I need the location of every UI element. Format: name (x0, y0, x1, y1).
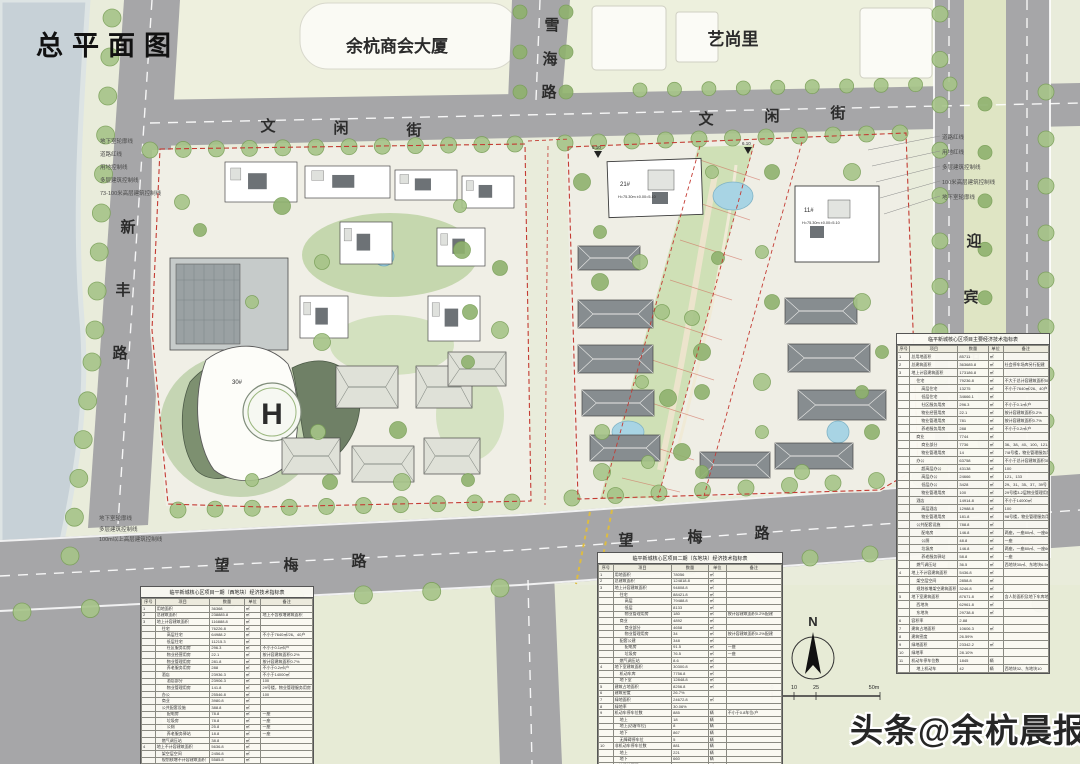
table-cell (142, 737, 156, 744)
tree (771, 80, 785, 94)
table-cell: 辆 (988, 665, 1003, 673)
table-cell: 78056 (672, 572, 709, 579)
tree (423, 582, 441, 600)
table-cell: 1 (898, 353, 910, 361)
tree (79, 392, 97, 410)
table-cell: 不小于14000㎡ (261, 671, 313, 678)
table-cell: 住宅 (910, 377, 958, 385)
table-cell: ㎡ (708, 618, 726, 625)
table-cell: 辆 (708, 743, 726, 750)
table-row: 2总建筑面积124818.8㎡ (599, 578, 782, 585)
table-cell: 10 (898, 649, 910, 657)
table-cell: 2456.8 (210, 751, 244, 758)
table-cell (898, 529, 910, 537)
table-cell: ㎡ (244, 698, 261, 705)
table-cell: ㎡ (244, 606, 261, 613)
table-cell: 绿地率 (613, 703, 672, 710)
table-cell (142, 711, 156, 718)
table-cell (599, 611, 614, 618)
table-row: 高层住宅13275㎡不小于7640㎡/26、40户 (898, 385, 1049, 393)
table-cell: 地下室 (613, 677, 672, 684)
table-cell (261, 744, 313, 751)
table-cell: ㎡ (988, 537, 1003, 545)
table-row: 地下室12848.8㎡ (599, 677, 782, 684)
indicator-table-overall: 临平新城核心区项目主要经济技术指标表序号项目数量单位备注1总用地面积85711㎡… (896, 333, 1050, 674)
table-row: 东地块29738.8㎡ (898, 609, 1049, 617)
table-cell (726, 572, 781, 579)
table-cell: 低层办公 (910, 481, 958, 489)
table-cell: ㎡ (988, 353, 1003, 361)
table-cell: 架空层空间 (155, 751, 210, 758)
table-cell: ㎡ (988, 457, 1003, 465)
table-cell: ㎡ (244, 638, 261, 645)
table-cell: 按计容建筑面积0.2%配建 (726, 611, 781, 618)
table-cell: ㎡ (708, 637, 726, 644)
table-cell: 按计容建筑面积0.2% (261, 652, 313, 659)
table-header-cell: 项目 (155, 599, 210, 606)
table-cell (1003, 369, 1048, 377)
table-cell: 6 (898, 617, 910, 625)
table-cell (599, 624, 614, 631)
table-cell (261, 757, 313, 764)
table-cell: 建筑密度 (613, 690, 672, 697)
table-cell: 8 (672, 723, 709, 730)
tree (390, 422, 407, 439)
table-cell: 辆 (708, 736, 726, 743)
table-cell (726, 703, 781, 710)
table-cell: ㎡ (708, 611, 726, 618)
table-cell: 建筑占地面积 (613, 684, 672, 691)
tree (825, 475, 841, 491)
table-cell (726, 743, 781, 750)
table-cell: ㎡ (988, 473, 1003, 481)
table-row: 超高层办公43138㎡100 (898, 465, 1049, 473)
table-cell: 63758 (958, 457, 988, 465)
tree (92, 204, 110, 222)
tree (559, 5, 573, 19)
table-cell: 社区服务用房 (910, 401, 958, 409)
table-row: 7绿地面积24672.8㎡ (599, 697, 782, 704)
table-cell: ㎡ (988, 425, 1003, 433)
table-row: 4地上不计容建筑面积5636.8㎡ (142, 744, 313, 751)
tree (394, 474, 411, 491)
table-cell (726, 624, 781, 631)
tree (695, 483, 711, 499)
table-cell: 221 (672, 750, 709, 757)
table-row: 低层住宅34666.1㎡ (898, 393, 1049, 401)
table-cell: 29号楼3-2层物业管理用房 (1003, 489, 1048, 497)
table-cell: ㎡ (244, 685, 261, 692)
table-row: 燃气调压站38.8㎡ (142, 737, 313, 744)
table-cell (726, 670, 781, 677)
table-cell: ㎡ (988, 521, 1003, 529)
annotation-line: 73-100米高层建筑控制线 (100, 188, 161, 201)
table-cell: 10 (599, 743, 614, 750)
table-cell: ㎡ (244, 731, 261, 738)
annotation-line: 多层建筑控制线 (100, 175, 161, 188)
table-cell: 7 (599, 697, 614, 704)
chamber-building (300, 3, 518, 69)
table-cell: 不小于7640㎡/26、40户 (261, 632, 313, 639)
table-cell: 30.06% (672, 703, 709, 710)
table-cell: 4 (599, 664, 614, 671)
table-cell: ㎡ (708, 697, 726, 704)
tree (854, 294, 871, 311)
table-cell: 两座，一座80㎡、一座66.8㎡ (1003, 545, 1048, 553)
table-cell: 34 (672, 631, 709, 638)
tree (393, 497, 409, 513)
table-row: 8绿地率30.06% (599, 703, 782, 710)
table-row: 配电房91.5㎡一座 (599, 644, 782, 651)
road-label-xinfeng: 丰 (115, 281, 130, 299)
table-cell: 26.59% (958, 633, 988, 641)
tree (592, 274, 609, 291)
label-yishangli: 艺尚里 (708, 29, 759, 49)
table-row: 2总建筑面积238885.8㎡地上不含核增建筑面积 (142, 612, 313, 619)
tree (862, 546, 878, 562)
table-cell: 100 (1003, 505, 1048, 513)
table-cell: 87671.8 (958, 593, 988, 601)
table-cell (898, 537, 910, 545)
table-cell: 12988.8 (958, 505, 988, 513)
table-cell: 地上计容建筑面积 (155, 619, 210, 626)
table-cell (1003, 609, 1048, 617)
table-cell: ㎡ (244, 737, 261, 744)
table-cell: ㎡ (244, 652, 261, 659)
road-label-wangmei-w: 望 (214, 556, 229, 574)
table-cell (599, 730, 614, 737)
table-row: 4地下室建筑面积30300.8㎡ (599, 664, 782, 671)
tree (323, 475, 338, 490)
table-cell: 3980.8 (210, 698, 244, 705)
table-cell: 98号楼，物业管理服务用房 (1003, 513, 1048, 521)
tree (13, 603, 31, 621)
table-row: 物业管理用房141.8㎡29号楼，物业管理服务用房 (142, 685, 313, 692)
tree (756, 426, 769, 439)
table-cell: ㎡ (988, 585, 1003, 593)
table-cell (142, 751, 156, 758)
table-row: 物业管理用房781㎡按计容建筑面积0.7% (898, 417, 1049, 425)
table-cell: 3 (142, 619, 156, 626)
table-row: 养老服务用房288㎡不小于0.2㎡/户 (142, 665, 313, 672)
table-cell: 1 (599, 572, 614, 579)
table-cell (898, 577, 910, 585)
tree (315, 255, 330, 270)
table-cell: 绿地率 (910, 649, 958, 657)
table-row: 物业经营用房22.1㎡按计容建筑面积0.2% (898, 409, 1049, 417)
table-cell (898, 393, 910, 401)
tree (932, 6, 948, 22)
table-cell: 6 (599, 690, 614, 697)
building-slab (305, 166, 390, 198)
table-row: 养老服务驿站18.8㎡一座 (142, 731, 313, 738)
label-chamber: 余杭商会大厦 (345, 36, 449, 56)
table-cell: 地上(访客车位) (613, 723, 672, 730)
table-cell: 173186.8 (958, 369, 988, 377)
table-cell: ㎡ (708, 664, 726, 671)
watermark: 头条@余杭晨报 (850, 704, 1080, 752)
road-label-wenxian-e: 文 (698, 110, 714, 128)
table-cell (898, 449, 910, 457)
table-cell: ㎡ (988, 569, 1003, 577)
table-cell: 高层酒店 (910, 505, 958, 513)
tree (318, 498, 334, 514)
table-cell (1003, 433, 1048, 441)
table-cell: 燃气调压站 (613, 657, 672, 664)
table-cell: 348 (672, 637, 709, 644)
indicator-table: 序号项目数量单位备注1总用地面积85711㎡2总建筑面积363685.8㎡社会停… (897, 345, 1049, 673)
table-cell: ㎡ (988, 545, 1003, 553)
table-cell: 西地块30㎡、东地块6.5㎡ (1003, 561, 1048, 569)
table-cell: 不小于0.8车位/户 (726, 710, 781, 717)
tree (356, 498, 372, 514)
tree (667, 82, 681, 96)
table-cell: 按计容建筑面积0.7% (1003, 417, 1048, 425)
table-row: 垃圾房146.8㎡两座，一座80㎡、一座66.8㎡ (898, 545, 1049, 553)
table-cell: 总用地面积 (910, 353, 958, 361)
table-cell: 29738.8 (958, 609, 988, 617)
table-cell: 76226.8 (210, 625, 244, 632)
table-cell: 2 (599, 578, 614, 585)
tree (311, 425, 326, 440)
table-cell: 按计容建筑面积0.7% (261, 658, 313, 665)
table-cell: 100 (958, 489, 988, 497)
table-row: 高层住宅64988.2㎡不小于7640㎡/26、40户 (142, 632, 313, 639)
annotation-line: 地下室轮廓线 (942, 191, 995, 206)
table-cell: ㎡ (988, 641, 1003, 649)
table-cell: ㎡ (244, 724, 261, 731)
table-cell (261, 625, 313, 632)
table-cell: 5 (898, 593, 910, 601)
tree (636, 376, 649, 389)
table-cell: 高层 (613, 598, 672, 605)
table-cell: 不小于7640㎡/26、40户 (1003, 385, 1048, 393)
tree (874, 78, 888, 92)
table-cell: 绿地面积 (910, 641, 958, 649)
table-cell: 酒店部分 (155, 678, 210, 685)
yishangli-building (860, 8, 932, 78)
table-cell: 9 (599, 710, 614, 717)
table-row: 公共配套设施388.8㎡ (142, 704, 313, 711)
table-cell (599, 750, 614, 757)
table-cell (898, 497, 910, 505)
table-cell: 绿地面积 (613, 697, 672, 704)
table-cell: 配套公建 (613, 637, 672, 644)
table-cell: 一座 (1003, 553, 1048, 561)
table-cell (898, 481, 910, 489)
table-cell: 公共配套设施 (155, 704, 210, 711)
table-cell (726, 598, 781, 605)
table-cell: 低层住宅 (155, 638, 210, 645)
table-cell: 13275 (958, 385, 988, 393)
table-header-cell: 备注 (726, 565, 781, 572)
table-cell: 296.3 (210, 645, 244, 652)
table-cell (261, 698, 313, 705)
table-cell: 物业经营用房 (155, 652, 210, 659)
watermark-handle: @余杭晨报 (918, 712, 1080, 749)
table-cell (1003, 633, 1048, 641)
table-row: 社区服务用房296.3㎡不小于0.1㎡/户 (898, 401, 1049, 409)
table-cell (898, 457, 910, 465)
table-cell (898, 561, 910, 569)
table-cell: 商业 (155, 698, 210, 705)
table-cell: 3 (599, 585, 614, 592)
table-cell: 公厕 (155, 724, 210, 731)
tree (559, 45, 573, 59)
table-cell: 物业经营用房 (910, 409, 958, 417)
table-cell: 7744 (958, 433, 988, 441)
table-row: 1用地面积36368㎡ (142, 606, 313, 613)
indicator-table: 序号项目数量单位备注1用地面积78056㎡2总建筑面积124818.8㎡3地上计… (598, 564, 782, 764)
table-cell: 91.5 (672, 644, 709, 651)
building-info-11: H=75.30m ±0.00=5.10 (802, 221, 840, 225)
table-cell (599, 618, 614, 625)
table-cell: ㎡ (988, 561, 1003, 569)
table-cell: 西地块32、东地块10 (1003, 665, 1048, 673)
road-label-xuehai: 路 (541, 83, 557, 101)
tree (795, 465, 810, 480)
tree (691, 131, 707, 147)
tree (491, 579, 509, 597)
table-cell: ㎡ (244, 757, 261, 764)
table-row: 物业管理用房100㎡29号楼3-2层物业管理用房 (898, 489, 1049, 497)
table-cell: 5 (672, 736, 709, 743)
table-row: 物业管理用房281.8㎡按计容建筑面积0.7% (142, 658, 313, 665)
table-row: 低层办公3428㎡29、31、35、37、39号 (898, 481, 1049, 489)
tree (660, 390, 677, 407)
table-cell: 低层 (613, 604, 672, 611)
table-cell: 按计容建筑面积0.2%配建 (726, 631, 781, 638)
table-cell (988, 633, 1003, 641)
table-cell: 地上不含核增建筑面积 (261, 612, 313, 619)
scale-tick: 25 (813, 685, 819, 691)
pond (713, 182, 753, 210)
tree (633, 83, 647, 97)
table-cell: 34666.1 (958, 393, 988, 401)
building-label-21: 21# (620, 182, 631, 188)
table-cell: 78.8 (210, 711, 244, 718)
table-cell: 5585.8 (210, 757, 244, 764)
scale-tick: 10 (791, 685, 797, 691)
table-cell: 22.1 (210, 652, 244, 659)
table-cell: ㎡ (708, 585, 726, 592)
table-cell: ㎡ (988, 513, 1003, 521)
table-row: 配电房78.8㎡一座 (142, 711, 313, 718)
table-cell: 781 (958, 417, 988, 425)
table-cell: 64988.2 (210, 632, 244, 639)
table-cell: 酒店 (155, 671, 210, 678)
building-slab (300, 296, 348, 338)
table-cell: 配电房 (155, 711, 210, 718)
table-cell: 机动车停车位数 (613, 710, 672, 717)
table-cell: 100 (1003, 465, 1048, 473)
table-cell: 办公 (910, 457, 958, 465)
tree (802, 550, 818, 566)
tree (175, 195, 190, 210)
road-label-wangmei-w: 路 (351, 552, 367, 570)
table-cell (1003, 393, 1048, 401)
table-cell: 架空层空间 (910, 577, 958, 585)
table-cell: 养老服务用房 (910, 425, 958, 433)
table-row: 办公63758㎡不小于总计容建筑面积30% (898, 457, 1049, 465)
table-cell: ㎡ (708, 657, 726, 664)
annotation-line: 用地控制线 (100, 162, 161, 175)
table-cell: 660 (672, 756, 709, 763)
table-cell: 238885.8 (210, 612, 244, 619)
table-cell: 辆 (708, 717, 726, 724)
tree (354, 586, 372, 604)
annotation-line: 地下室轮廓线 (99, 514, 162, 525)
table-row: 地上221辆 (599, 750, 782, 757)
table-cell (599, 670, 614, 677)
table-row: 规划核增架空建筑面积3246.8㎡ (898, 585, 1049, 593)
table-cell: 7/8号楼，物业管理服务用房 (1003, 449, 1048, 457)
table-cell (142, 645, 156, 652)
table-cell: 7736 (958, 441, 988, 449)
table-cell: 3 (898, 369, 910, 377)
table-cell: 两座，一座80㎡、一座66.8㎡ (1003, 529, 1048, 537)
table-row: 住宅88421.8㎡ (599, 591, 782, 598)
building-lowrise (424, 438, 480, 474)
table-header-cell: 序号 (599, 565, 614, 572)
table-cell (898, 465, 910, 473)
tree (658, 132, 674, 148)
building-lowrise (798, 390, 886, 420)
table-cell (1003, 353, 1048, 361)
east-tower-11: 11# H=75.30m ±0.00=5.10 (795, 186, 879, 262)
table-cell: 按计容建筑面积0.2% (1003, 409, 1048, 417)
table-cell: 36368 (210, 606, 244, 613)
table-cell (726, 690, 781, 697)
table-header-cell: 数量 (958, 346, 988, 353)
table-cell: 11215.3 (210, 638, 244, 645)
table-cell (726, 677, 781, 684)
table-cell (1003, 577, 1048, 585)
tree (782, 478, 798, 494)
table-row: 9绿地面积23342.2㎡ (898, 641, 1049, 649)
table-cell (142, 658, 156, 665)
table-header-cell: 项目 (910, 346, 958, 353)
tree (1038, 178, 1054, 194)
table-cell: 高层办公 (910, 473, 958, 481)
table-row: 物业管理用房34㎡按计容建筑面积0.2%配建 (599, 631, 782, 638)
table-cell: 辆 (708, 730, 726, 737)
table-cell (898, 377, 910, 385)
tree (246, 474, 259, 487)
tree (244, 500, 260, 516)
table-cell: 用地面积 (155, 606, 210, 613)
table-cell: 不小于0.2㎡/户 (1003, 425, 1048, 433)
table-cell: 8.6 (672, 657, 709, 664)
table-cell: 363685.8 (958, 361, 988, 369)
table-cell: 地上计容建筑面积 (613, 585, 672, 592)
table-cell: 建筑占地面积 (910, 625, 958, 633)
table-cell: 4892 (672, 618, 709, 625)
tree (876, 346, 889, 359)
table-cell (142, 652, 156, 659)
table-row: 架空层空间2456.8㎡ (142, 751, 313, 758)
tree (463, 305, 478, 320)
tree (765, 165, 780, 180)
table-cell: 36.5 (958, 561, 988, 569)
table-cell: 29、31、35、37、39号 (1003, 481, 1048, 489)
table-cell: 地上 (613, 717, 672, 724)
table-cell: 不小于0.1㎡/户 (1003, 401, 1048, 409)
table-cell (726, 585, 781, 592)
building-lowrise (788, 344, 870, 372)
table-cell: 规划核增架空建筑面积 (910, 585, 958, 593)
table-cell: 高层住宅 (910, 385, 958, 393)
